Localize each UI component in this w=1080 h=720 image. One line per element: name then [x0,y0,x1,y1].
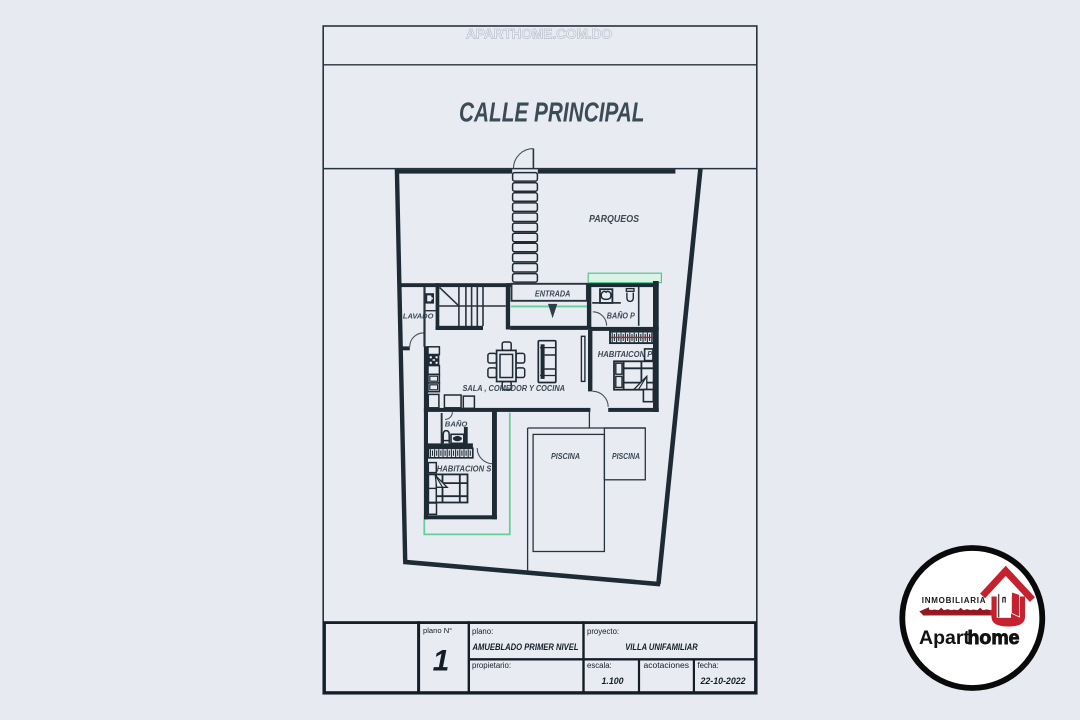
svg-text:Apart: Apart [919,627,970,649]
svg-text:plano:: plano: [472,627,493,636]
svg-text:BAÑO P: BAÑO P [607,312,636,321]
svg-text:ENTRADA: ENTRADA [535,289,571,299]
svg-text:1: 1 [433,645,450,678]
svg-text:PISCINA: PISCINA [612,452,640,461]
svg-text:proyecto:: proyecto: [587,627,619,636]
svg-text:INMOBILIARIA: INMOBILIARIA [922,596,987,605]
svg-text:HABITACION S: HABITACION S [437,464,492,473]
svg-text:LAVADO: LAVADO [403,312,434,321]
svg-text:AMUEBLADO PRIMER NIVEL: AMUEBLADO PRIMER NIVEL [472,642,579,652]
svg-text:VILLA UNIFAMILIAR: VILLA UNIFAMILIAR [625,642,698,652]
svg-text:PARQUEOS: PARQUEOS [589,213,639,225]
svg-text:propietario:: propietario: [472,661,511,670]
svg-text:plano N°: plano N° [423,626,452,635]
svg-text:22-10-2022: 22-10-2022 [700,676,746,686]
svg-text:home: home [968,627,1020,649]
svg-text:escala:: escala: [587,661,612,670]
svg-text:SALA , COMEDOR Y COCINA: SALA , COMEDOR Y COCINA [463,384,566,393]
svg-text:PISCINA: PISCINA [551,451,580,461]
svg-text:APARTHOME.COM.DO: APARTHOME.COM.DO [466,26,612,41]
svg-text:fecha:: fecha: [698,661,719,670]
svg-text:CALLE PRINCIPAL: CALLE PRINCIPAL [459,96,645,127]
svg-text:acotaciones: acotaciones [644,661,690,670]
svg-text:HABITAICON P: HABITAICON P [598,350,653,359]
svg-text:1.100: 1.100 [601,676,623,686]
